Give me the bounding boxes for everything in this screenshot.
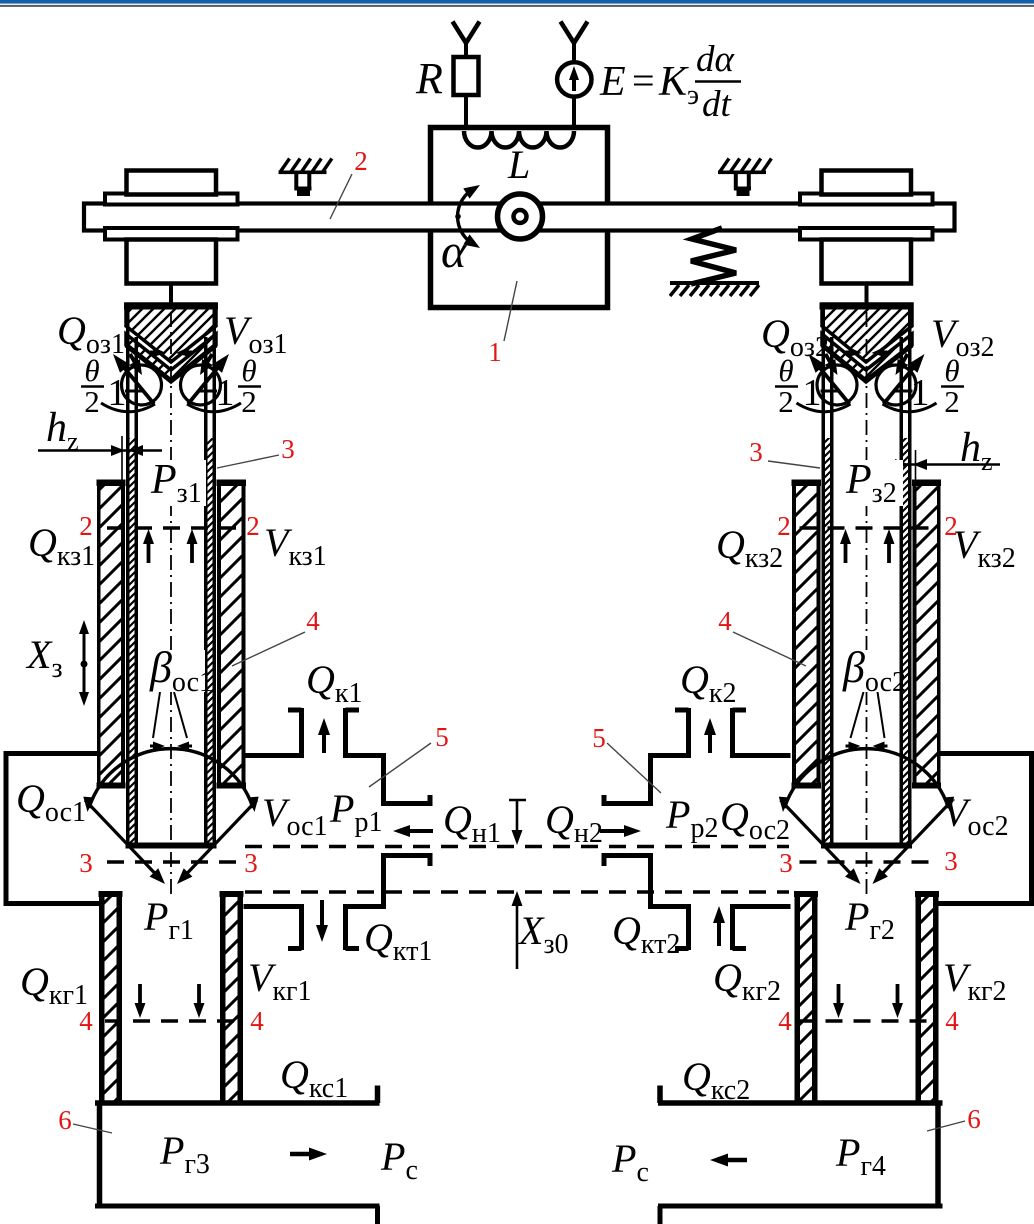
svg-text:θ: θ xyxy=(241,353,256,388)
svg-text:3: 3 xyxy=(779,848,793,878)
svg-text:hz: hz xyxy=(960,425,993,476)
svg-text:dt: dt xyxy=(702,84,733,125)
svg-text:1: 1 xyxy=(911,372,930,414)
svg-text:Qос2: Qос2 xyxy=(720,794,790,846)
svg-text:6: 6 xyxy=(967,1104,981,1134)
svg-text:Pс: Pс xyxy=(611,1136,649,1188)
svg-text:Qос1: Qос1 xyxy=(16,776,86,828)
svg-text:Qкз2: Qкз2 xyxy=(716,522,783,574)
svg-text:Vкг1: Vкг1 xyxy=(248,955,312,1007)
svg-text:1: 1 xyxy=(803,372,822,414)
svg-text:Qк2: Qк2 xyxy=(680,657,737,709)
svg-text:Vос1: Vос1 xyxy=(262,790,328,842)
svg-text:Qкг2: Qкг2 xyxy=(713,955,781,1007)
svg-text:=: = xyxy=(632,58,655,103)
svg-text:Qн1: Qн1 xyxy=(443,797,501,849)
svg-text:4: 4 xyxy=(778,1006,792,1036)
svg-text:Pс: Pс xyxy=(380,1134,418,1186)
svg-text:3: 3 xyxy=(944,846,958,876)
svg-text:1: 1 xyxy=(108,372,127,414)
svg-text:2: 2 xyxy=(354,146,368,176)
svg-text:4: 4 xyxy=(718,606,732,636)
svg-text:2: 2 xyxy=(777,511,791,541)
svg-text:2: 2 xyxy=(944,384,960,419)
svg-text:L: L xyxy=(507,142,530,187)
svg-text:Qкт2: Qкт2 xyxy=(612,908,680,960)
svg-text:5: 5 xyxy=(435,722,449,752)
svg-text:4: 4 xyxy=(250,1006,264,1036)
svg-text:3: 3 xyxy=(749,437,763,467)
svg-text:5: 5 xyxy=(592,723,606,753)
svg-text:Pг4: Pг4 xyxy=(835,1130,886,1182)
svg-text:Qкс2: Qкс2 xyxy=(682,1054,750,1106)
svg-text:E: E xyxy=(599,59,626,105)
svg-text:Xз0: Xз0 xyxy=(517,908,569,960)
svg-text:4: 4 xyxy=(945,1006,959,1036)
svg-text:R: R xyxy=(415,54,443,103)
svg-text:Qоз2: Qоз2 xyxy=(761,311,829,363)
svg-text:Qкс1: Qкс1 xyxy=(280,1052,348,1104)
svg-text:6: 6 xyxy=(58,1105,72,1135)
svg-text:Vос2: Vос2 xyxy=(943,790,1009,842)
svg-text:dα: dα xyxy=(696,39,736,80)
svg-text:Qк1: Qк1 xyxy=(306,657,363,709)
svg-text:4: 4 xyxy=(79,1006,93,1036)
svg-text:4: 4 xyxy=(306,606,320,636)
svg-text:Vкз2: Vкз2 xyxy=(953,522,1016,574)
svg-text:Xз: Xз xyxy=(25,632,63,684)
svg-text:Qн2: Qн2 xyxy=(545,797,603,849)
svg-text:Vкз1: Vкз1 xyxy=(264,520,327,572)
svg-text:θ: θ xyxy=(84,353,99,388)
svg-text:2: 2 xyxy=(246,511,260,541)
svg-text:Qкт1: Qкт1 xyxy=(364,915,432,967)
svg-text:1: 1 xyxy=(216,372,235,414)
svg-text:Kэ: Kэ xyxy=(658,59,699,111)
svg-text:2: 2 xyxy=(241,384,257,419)
svg-text:Pр1: Pр1 xyxy=(329,786,382,838)
svg-text:Vкг2: Vкг2 xyxy=(943,955,1007,1007)
svg-text:3: 3 xyxy=(79,848,93,878)
svg-text:1: 1 xyxy=(488,337,502,367)
svg-text:2: 2 xyxy=(778,384,794,419)
svg-text:3: 3 xyxy=(244,848,258,878)
svg-text:Pг3: Pг3 xyxy=(159,1128,210,1180)
svg-text:α: α xyxy=(441,225,467,278)
svg-text:Pр2: Pр2 xyxy=(665,792,718,844)
svg-text:Qкг1: Qкг1 xyxy=(20,959,88,1011)
svg-text:hz: hz xyxy=(46,405,79,456)
svg-text:3: 3 xyxy=(281,434,295,464)
svg-text:2: 2 xyxy=(79,511,93,541)
svg-text:θ: θ xyxy=(778,353,793,388)
svg-text:Vоз2: Vоз2 xyxy=(931,311,995,363)
svg-text:θ: θ xyxy=(944,353,959,388)
svg-text:2: 2 xyxy=(84,384,100,419)
